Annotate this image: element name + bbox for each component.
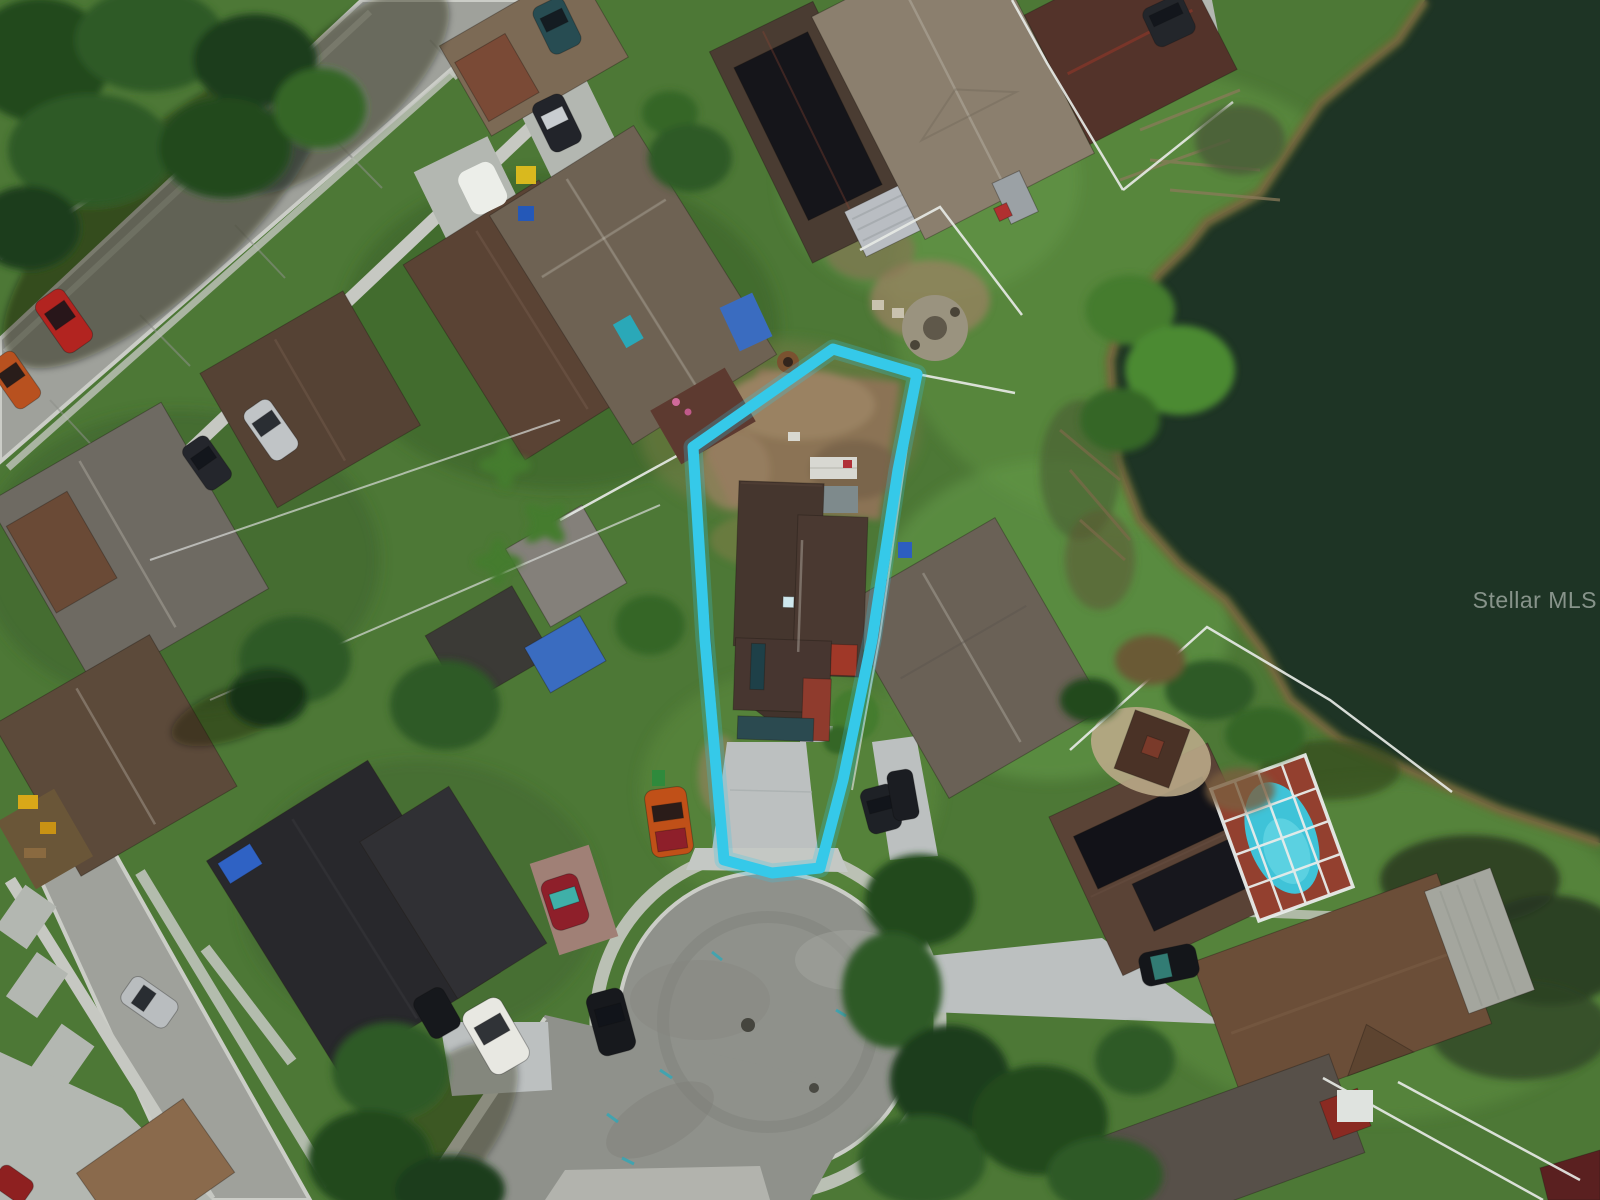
dock-awning [1337,1090,1373,1122]
flowers [672,398,680,406]
tree-top-center [648,124,732,192]
stepping-stones [872,300,884,310]
tree-mid-block [390,660,500,750]
aerial-photo-canvas: Stellar MLS [0,0,1600,1200]
bin-blue-2 [898,542,912,558]
skylight [783,596,794,607]
manhole-small [809,1083,819,1093]
tree-sw-of-east-house [1095,1025,1175,1095]
valley-gutter [545,1166,770,1200]
watermark: Stellar MLS [1473,587,1597,613]
bin-green [652,770,665,786]
patio-slab-gray [820,486,858,513]
bin-blue-1 [518,206,534,221]
red-patio [830,644,857,676]
front-porch [737,716,814,742]
truck-orange-curb [643,785,694,858]
patio-red-item [843,460,852,468]
bin-yellow [516,166,536,184]
manhole [741,1018,755,1032]
tree-west-of-parcel [615,595,685,655]
aerial-photo: Stellar MLS [0,0,1600,1200]
roof-panel-teal [750,643,766,689]
stepping-stone [788,432,800,441]
